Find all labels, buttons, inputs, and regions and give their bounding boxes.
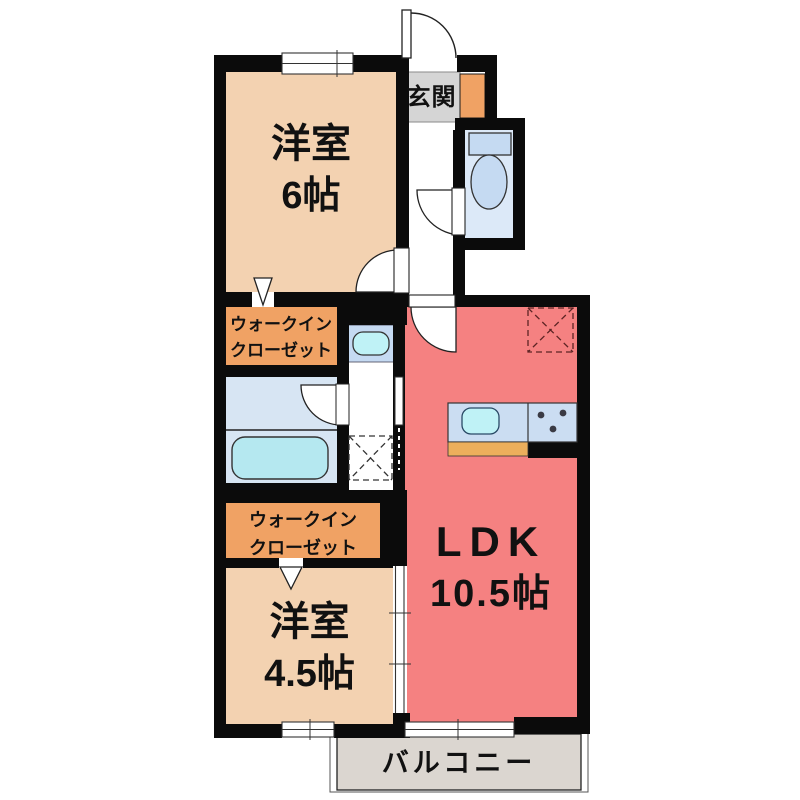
- wall-ldk-bottom-right: [514, 717, 590, 734]
- walk-in-closet2-label: ウォークイン クローゼット: [226, 507, 380, 563]
- walk-in-closet2-line2: クローゼット: [226, 535, 380, 563]
- kitchen-sink-icon: [462, 408, 499, 434]
- bedroom1-size: 6帖: [226, 171, 396, 221]
- floorplan: 玄関 洋室 6帖 ウォークイン クローゼット ウォークイン クローゼット LDK…: [0, 0, 800, 800]
- shoe-cabinet: [460, 74, 485, 118]
- corridor-ldk-door-panel: [395, 377, 403, 425]
- walk-in-closet1-line2: クローゼット: [224, 338, 338, 364]
- wall-kitchen-stub: [528, 442, 577, 458]
- wall-toilet-bottom: [455, 238, 525, 250]
- bedroom2-size: 4.5帖: [226, 649, 393, 699]
- washroom-door-panel: [336, 384, 349, 425]
- wall-toilet-right: [513, 118, 525, 250]
- ldk-name: LDK: [405, 514, 577, 569]
- walk-in-closet1-line1: ウォークイン: [224, 312, 338, 338]
- floorplan-drawing: [0, 0, 800, 800]
- entrance-label: 玄関: [403, 82, 460, 114]
- toilet-icon: [469, 133, 511, 155]
- bedroom1-door-panel: [394, 248, 409, 293]
- wall-bedroom1-bottom-left: [214, 292, 252, 307]
- balcony-label-text: バルコニー: [382, 748, 536, 778]
- ldk-size: 10.5帖: [405, 569, 577, 619]
- wall-outer-left: [214, 55, 226, 738]
- wall-closet2-right: [380, 490, 407, 566]
- entrance-door-swing: [411, 13, 456, 58]
- wall-toilet-left-upper: [453, 130, 465, 188]
- wall-ldk-top: [453, 295, 590, 307]
- wall-ldk-right: [577, 295, 590, 734]
- toilet-bowl-icon: [471, 155, 507, 209]
- bedroom1-name: 洋室: [226, 118, 396, 171]
- wall-closet1-bottom: [214, 365, 349, 377]
- walk-in-closet1-label: ウォークイン クローゼット: [224, 312, 338, 365]
- entrance-label-text: 玄関: [407, 84, 457, 111]
- wall-toilet-left-lower: [453, 234, 465, 250]
- bedroom2-label: 洋室 4.5帖: [226, 596, 393, 699]
- ldk-door-panel: [409, 295, 455, 307]
- kitchen-cabinet: [448, 442, 528, 456]
- entrance-door-panel: [402, 10, 411, 58]
- ldk-label: LDK 10.5帖: [405, 514, 577, 620]
- bathtub-icon: [232, 437, 328, 479]
- wall-bedroom2-bottom-left: [214, 724, 282, 738]
- bedroom2-name: 洋室: [226, 596, 393, 649]
- walk-in-closet2-line1: ウォークイン: [226, 507, 380, 535]
- vanity-sink-icon: [353, 332, 389, 355]
- wall-closet2-top: [214, 490, 407, 503]
- bedroom1-label: 洋室 6帖: [226, 118, 396, 221]
- toilet-door-panel: [452, 188, 465, 235]
- washing-machine-space-icon: [349, 436, 392, 480]
- balcony-label: バルコニー: [337, 746, 581, 782]
